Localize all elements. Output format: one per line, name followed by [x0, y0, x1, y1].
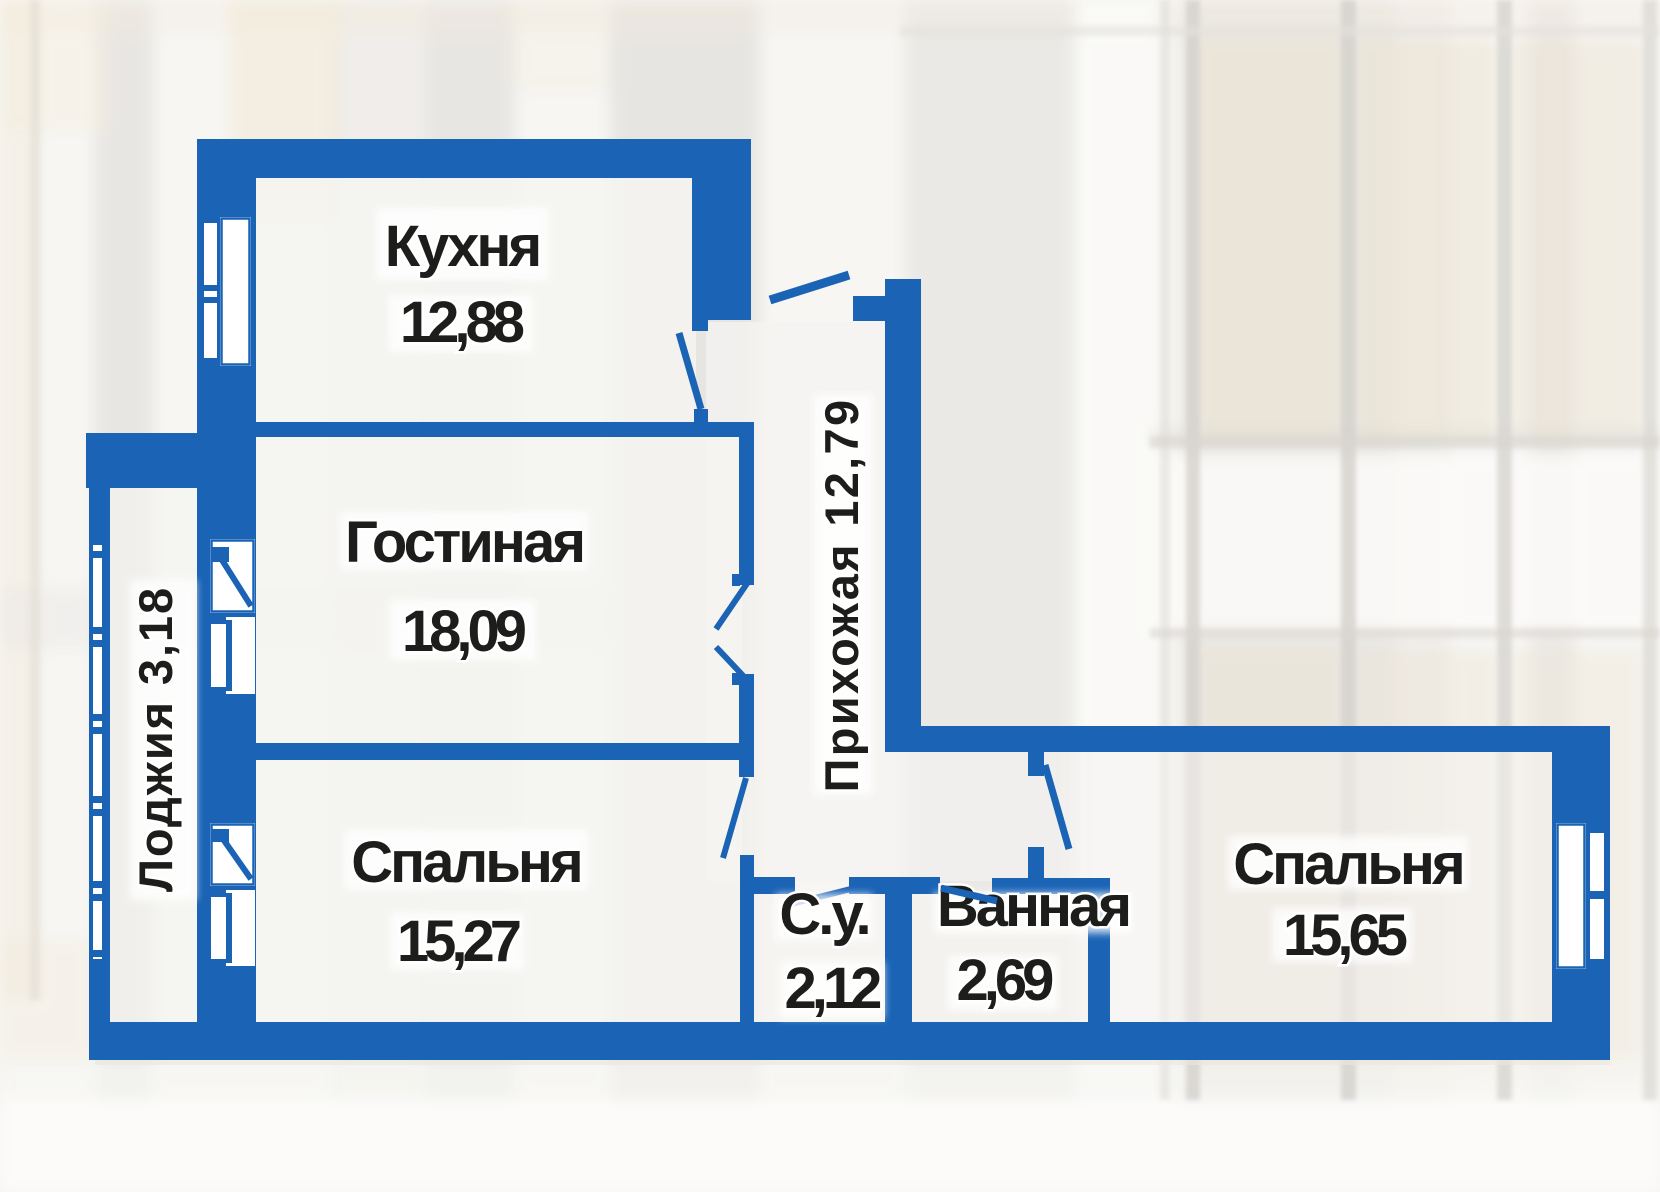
svg-text:15,27: 15,27: [397, 909, 520, 974]
svg-text:Прихожая 12,79: Прихожая 12,79: [815, 398, 868, 793]
svg-text:Спальня: Спальня: [351, 830, 581, 895]
svg-text:15,65: 15,65: [1283, 903, 1407, 968]
svg-text:Ванная: Ванная: [937, 874, 1129, 939]
svg-text:12,88: 12,88: [400, 290, 524, 355]
svg-text:18,09: 18,09: [402, 599, 526, 664]
svg-text:Кухня: Кухня: [385, 214, 540, 279]
svg-text:Спальня: Спальня: [1233, 832, 1463, 897]
svg-text:Лоджия 3,18: Лоджия 3,18: [129, 586, 182, 892]
svg-text:Гостиная: Гостиная: [345, 510, 583, 575]
svg-text:2,69: 2,69: [957, 948, 1054, 1013]
svg-text:С.у.: С.у.: [779, 882, 868, 947]
svg-text:2,12: 2,12: [785, 956, 881, 1021]
